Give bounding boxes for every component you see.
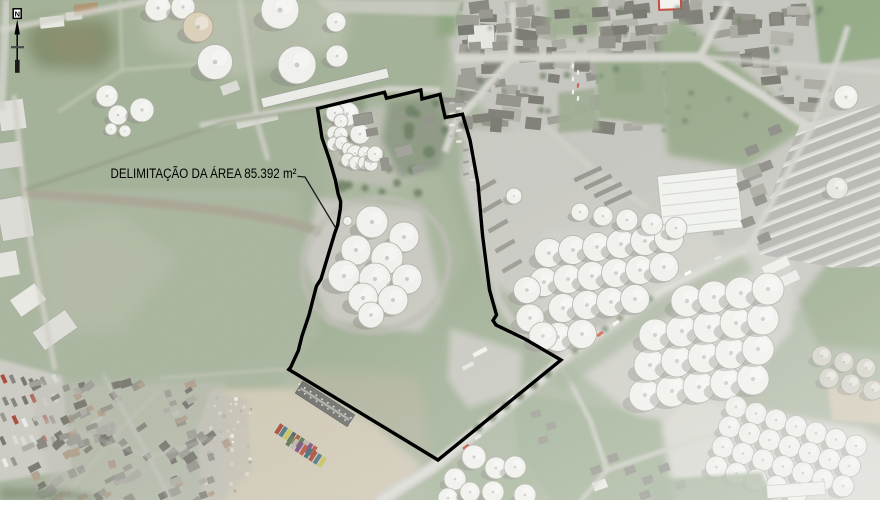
svg-text:DELIMITAÇÃO DA ÁREA 85.392 m²: DELIMITAÇÃO DA ÁREA 85.392 m² [111, 166, 297, 181]
svg-text:N: N [15, 9, 20, 18]
